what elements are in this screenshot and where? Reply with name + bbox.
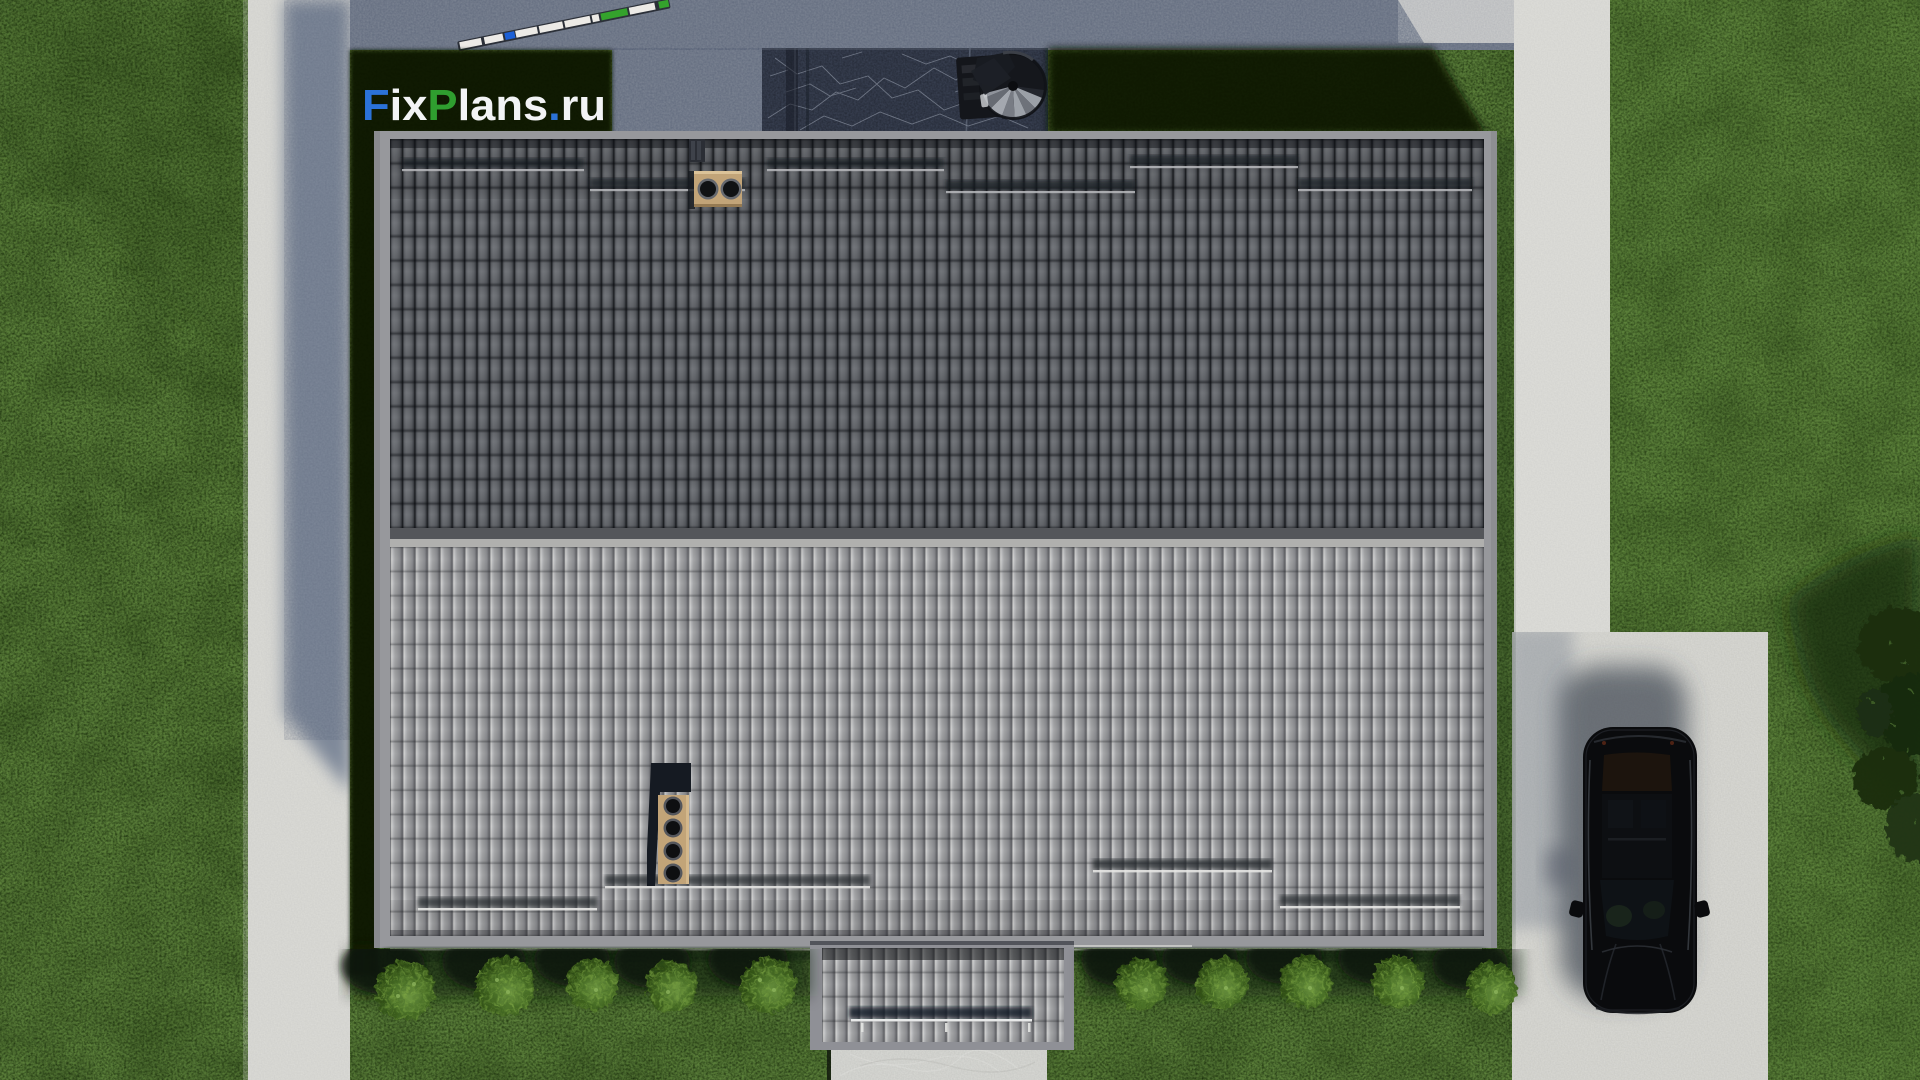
svg-text:FixPlans.ru: FixPlans.ru [362, 81, 606, 130]
